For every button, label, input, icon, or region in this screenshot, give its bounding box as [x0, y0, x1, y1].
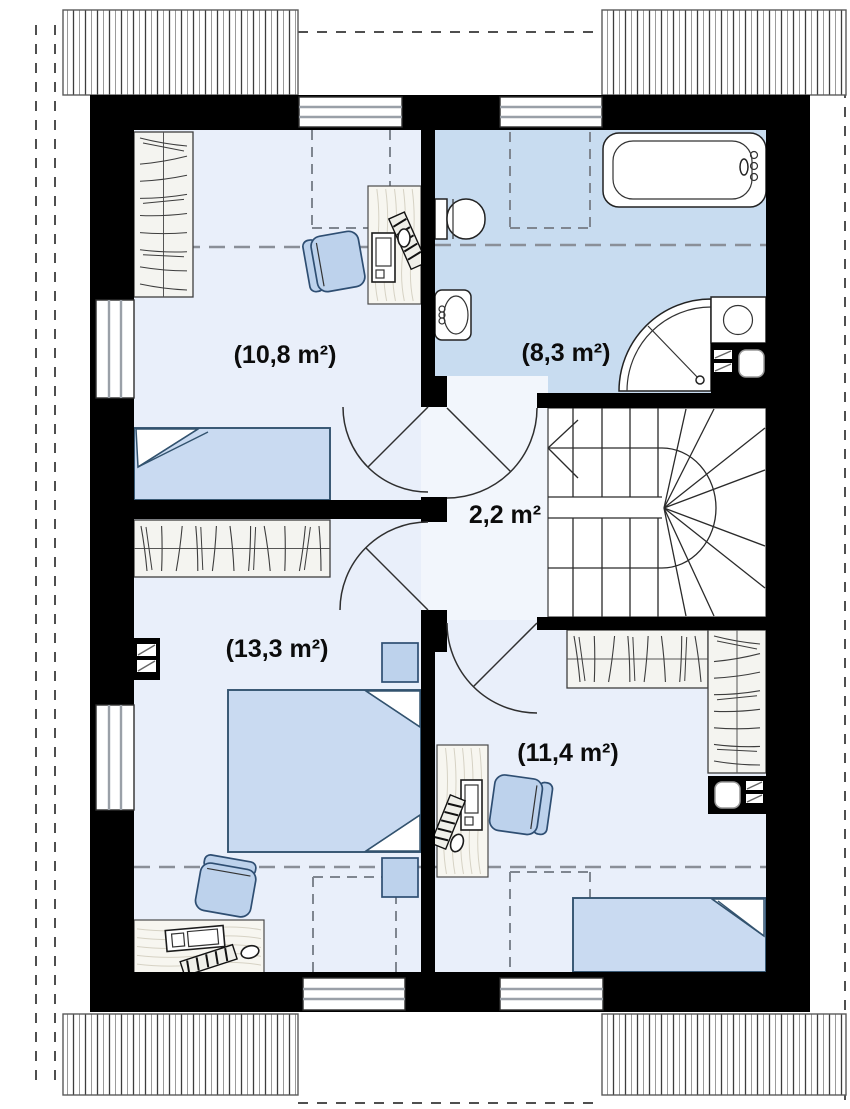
nightstand-top [382, 643, 418, 682]
mouse [398, 229, 410, 247]
wall-exterior-top [90, 95, 810, 130]
door-jamb-top [421, 376, 447, 407]
bed-single [134, 428, 330, 500]
window-left-lower [96, 705, 134, 810]
door-jamb-bottom [421, 610, 447, 652]
monitor [165, 926, 225, 952]
washbasin-counter [711, 297, 766, 343]
wardrobe [134, 132, 193, 297]
roof-hatch-top-right [602, 10, 846, 95]
room-label-bathroom: (8,3 m²) [522, 339, 611, 367]
closet [134, 520, 330, 577]
chair-seat [488, 774, 543, 836]
wall-exterior-right [766, 95, 810, 1012]
office-chair [302, 230, 367, 295]
nightstand-bottom [382, 858, 418, 897]
wall-between-left-bedrooms [134, 500, 421, 519]
room-label-bedroom-bottom-right: (11,4 m²) [517, 739, 618, 767]
wall-bathroom-stairs [537, 393, 766, 408]
flue [708, 776, 766, 814]
door-jamb-middle [421, 497, 447, 522]
bed-double [228, 690, 421, 852]
roof-hatch-bottom-left [63, 1014, 298, 1095]
monitor [372, 233, 395, 282]
wall-between-bottom-bedrooms [421, 652, 435, 972]
toilet [435, 199, 485, 239]
closet-top [567, 630, 708, 688]
wall-bathroom-left [421, 130, 435, 376]
shower-head [696, 376, 704, 384]
closet-right [708, 630, 766, 773]
chimney [134, 638, 160, 680]
window-bottom-right [500, 978, 603, 1010]
wall-stairs-bedroom [537, 617, 766, 630]
sink [435, 290, 471, 340]
floor-plan-drawing: (10,8 m²) (8,3 m²) 2,2 m² (13,3 m²) (11,… [0, 0, 850, 1109]
window-top-left [299, 97, 402, 127]
office-chair [488, 774, 553, 838]
window-left-upper [96, 300, 134, 398]
room-label-bedroom-bottom-left: (13,3 m²) [226, 635, 329, 663]
desk [368, 186, 427, 304]
window-bottom-left [303, 978, 405, 1010]
desk [134, 920, 264, 976]
floor-plan-page: (10,8 m²) (8,3 m²) 2,2 m² (13,3 m²) (11,… [0, 0, 850, 1109]
bed-single [573, 898, 766, 972]
roof-hatch-bottom-right [602, 1014, 846, 1095]
desk [431, 745, 488, 877]
flue-bathroom [711, 343, 766, 393]
bathtub [603, 133, 766, 207]
window-top-right [500, 97, 602, 127]
room-label-bedroom-top-left: (10,8 m²) [234, 341, 337, 369]
flue-duct [739, 350, 764, 377]
room-label-hallway: 2,2 m² [469, 501, 541, 529]
bathtub-spout [740, 159, 748, 175]
chair-seat [309, 230, 366, 293]
flue-duct [715, 782, 740, 808]
roof-hatch-top-left [63, 10, 298, 95]
chair-seat [194, 861, 257, 918]
wall-exterior-left [90, 95, 134, 1012]
staircase [548, 408, 766, 617]
office-chair [194, 854, 259, 919]
wall-exterior-bottom [90, 972, 810, 1012]
